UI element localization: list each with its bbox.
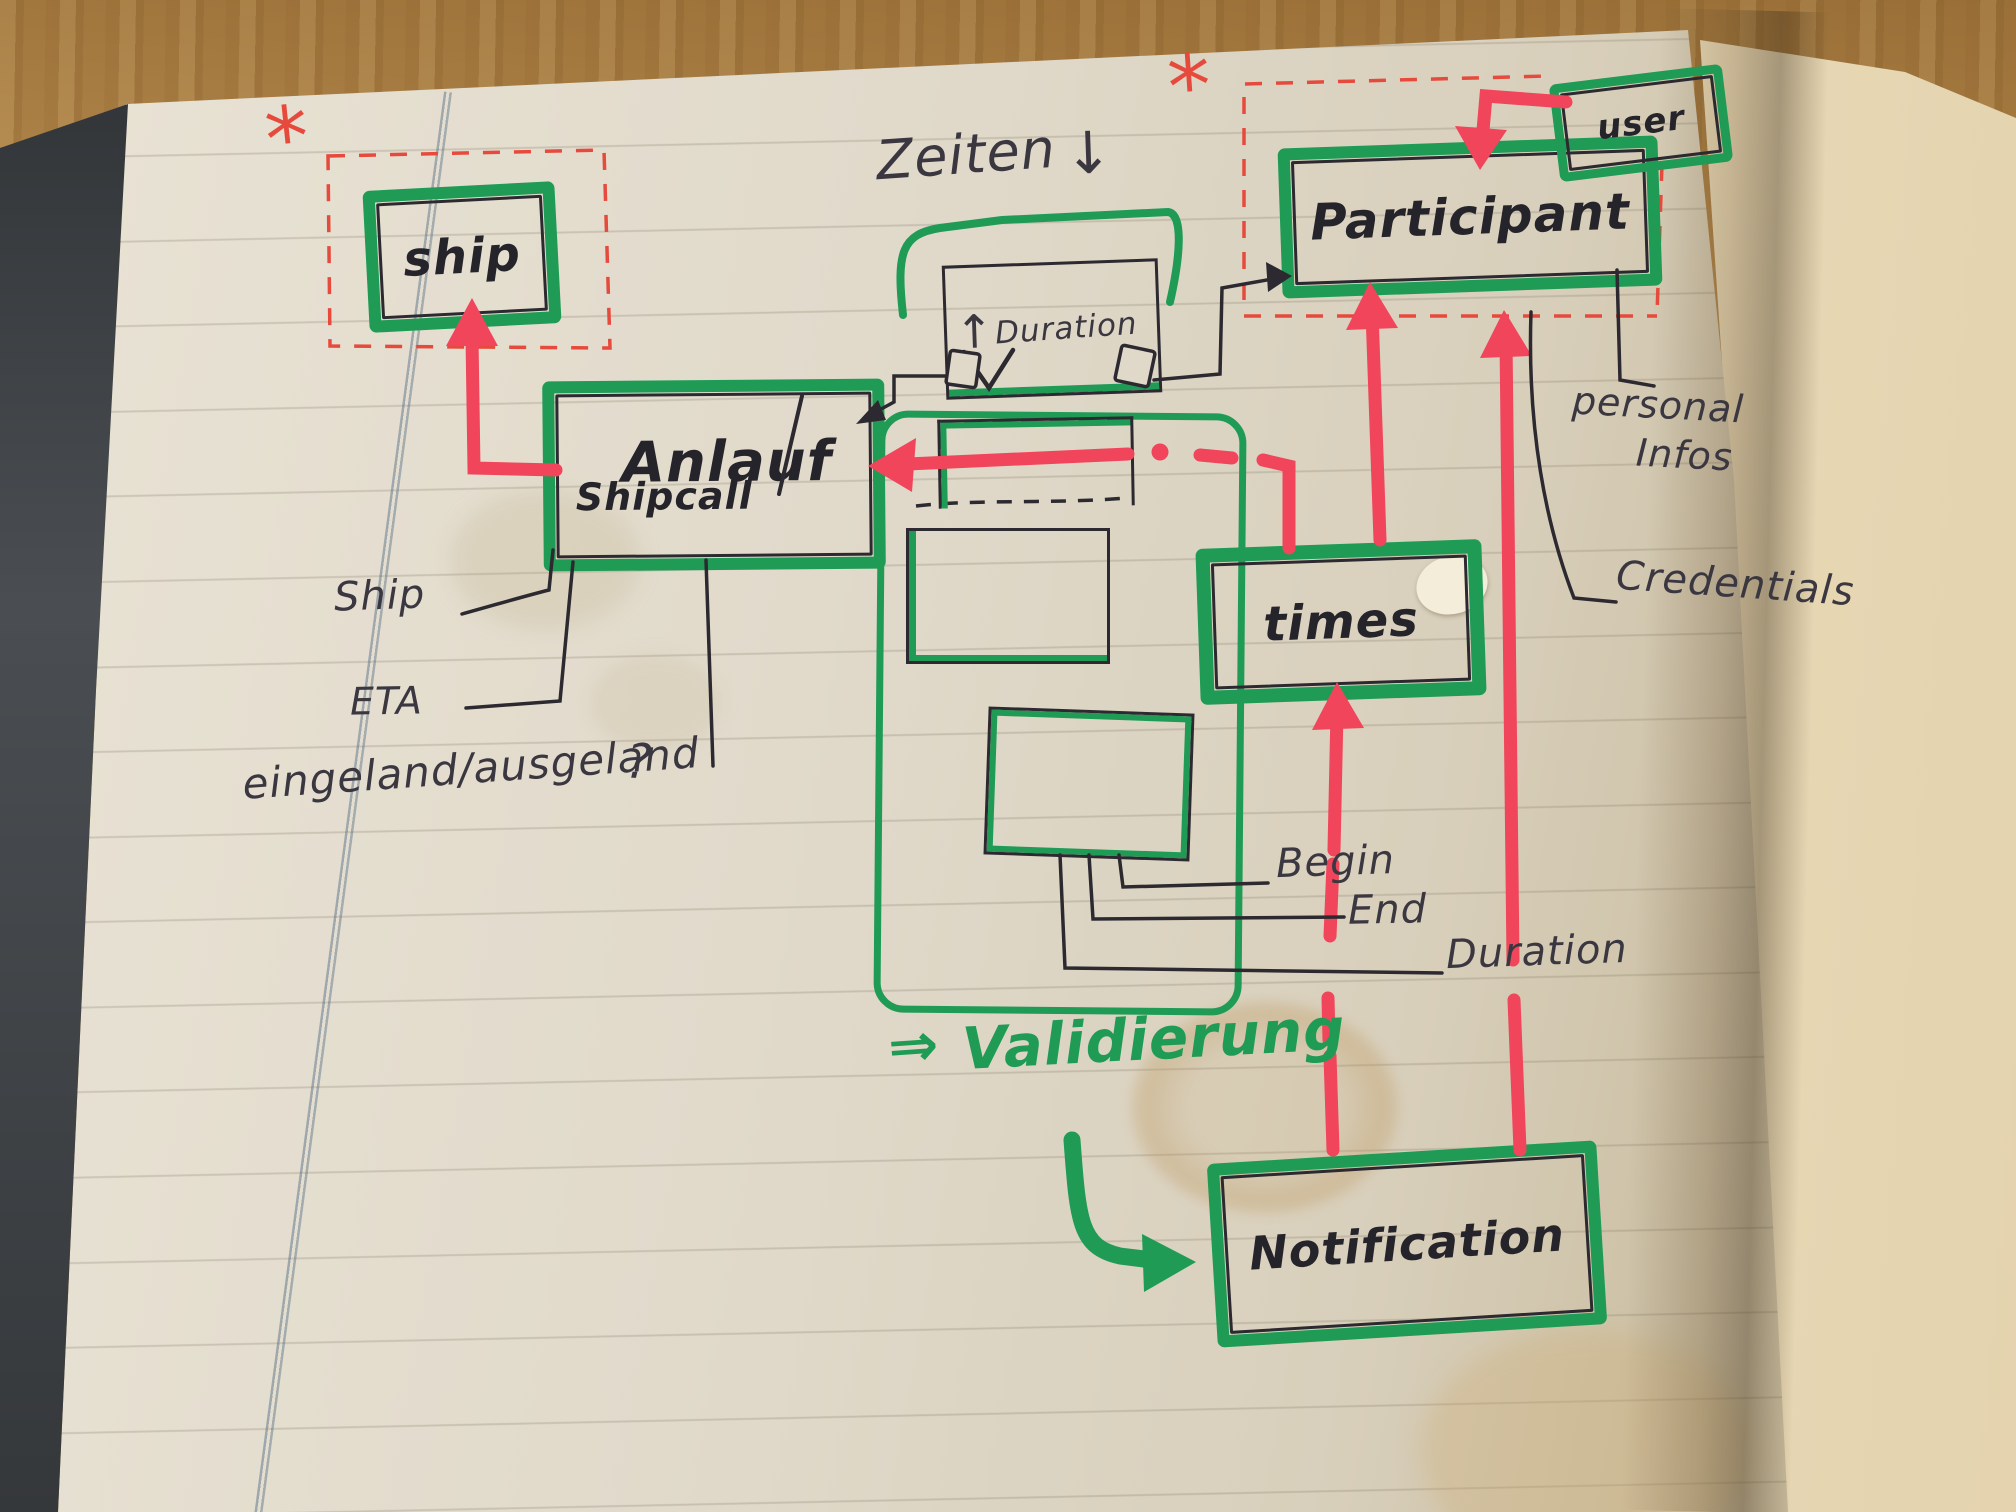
arrowhead-down-icon (1455, 126, 1507, 170)
arrow-notification-to-times (1328, 712, 1337, 1150)
arrowhead-up-icon (1312, 682, 1364, 730)
arrowhead-downleft-icon (856, 400, 886, 424)
down-arrow-icon: ↓ (1063, 123, 1115, 183)
arrow-shipcall-to-ship (472, 338, 556, 470)
connector-eingeland-attr (706, 560, 713, 766)
arrow-validation-to-notification (1072, 1140, 1152, 1260)
red-arrows (472, 96, 1566, 1150)
ink-connectors (462, 270, 1654, 973)
note-zeiten: Zeiten (874, 122, 1057, 188)
attr-begin: Begin (1275, 840, 1395, 884)
duration-ports (946, 345, 1156, 388)
attr-personal: personal (1571, 382, 1745, 429)
attr-end: End (1348, 889, 1428, 930)
arrowhead-right-icon (1142, 1234, 1196, 1292)
arrowhead-right-icon (1266, 262, 1292, 292)
double-arrow-icon: ⇒ (886, 1014, 941, 1077)
arrowhead-up-icon (1346, 282, 1398, 330)
connector-eta-attr (466, 562, 573, 708)
arrow-notification-to-participant (1506, 340, 1520, 1150)
connector-ship-attr (462, 550, 553, 614)
connector-credentials (1530, 312, 1616, 602)
attr-eta: ETA (350, 681, 423, 720)
red-dot (1152, 444, 1169, 461)
arrowhead-left-icon (868, 438, 916, 492)
connector-duration-to-shipcall (872, 376, 948, 414)
asterisk-participant: * (1165, 43, 1215, 132)
attr-infos: Infos (1635, 433, 1734, 476)
asterisk-ship: * (262, 94, 315, 184)
arrowhead-up-icon (446, 298, 498, 346)
port-square (1115, 345, 1156, 387)
red-arrowheads (446, 126, 1532, 730)
question-mark: ? (625, 737, 654, 786)
anlauf-strike-stroke (779, 396, 802, 494)
arrow-times-to-participant (1372, 312, 1380, 540)
attr-duration: Duration (1445, 929, 1628, 975)
arrow-times-to-shipcall (908, 454, 1289, 548)
notebook-photo: ↑ Duration ship Anlauf Shipcall Particip… (0, 0, 2016, 1512)
connector-personal-infos (1617, 270, 1654, 386)
connector-duration-to-participant (1154, 278, 1278, 380)
port-square (946, 350, 980, 388)
attr-ship: Ship (333, 574, 426, 617)
arrowhead-up-icon (1480, 310, 1532, 358)
connector-begin (1119, 855, 1268, 887)
